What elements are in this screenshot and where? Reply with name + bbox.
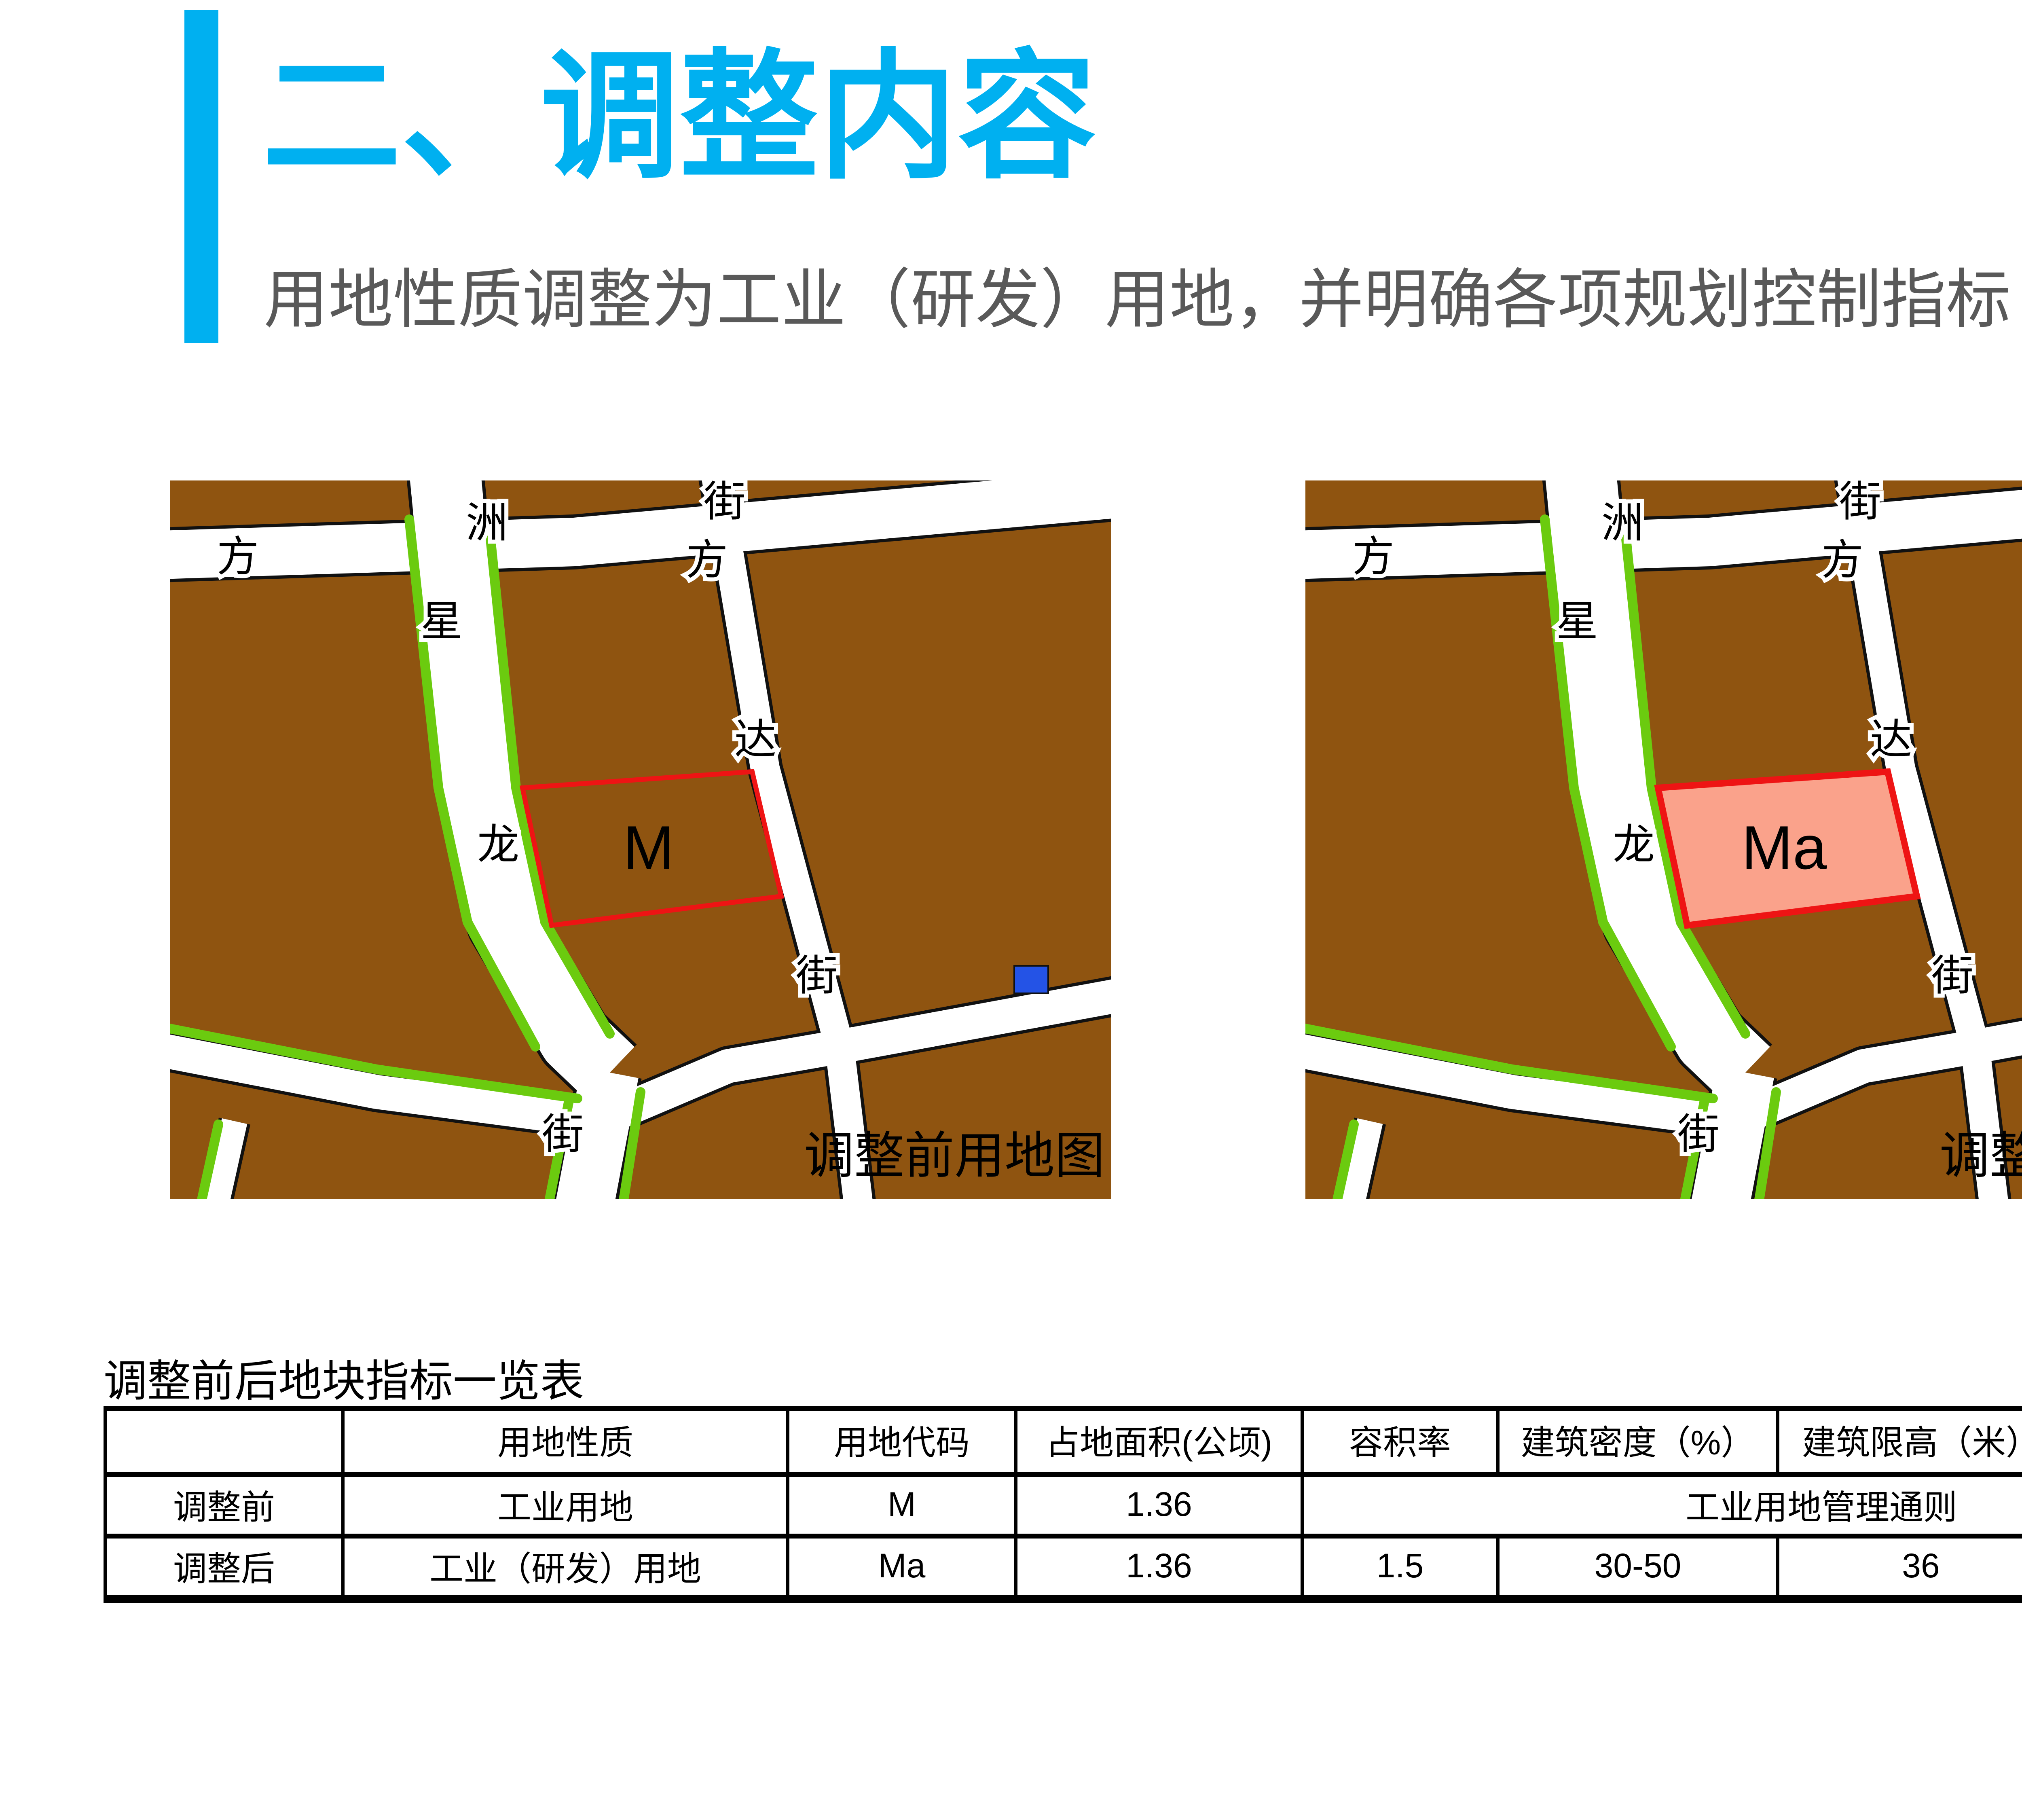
street-label-fang2: 方 xyxy=(686,537,728,584)
street-label-jie3: 街 xyxy=(1677,1111,1720,1158)
table-title: 调整前后地块指标一览表 xyxy=(104,1346,584,1409)
street-label-zhou: 洲 xyxy=(1601,499,1643,546)
th-blank xyxy=(105,1408,343,1475)
table-row-before: 调整前 工业用地 M 1.36 工业用地管理通则 xyxy=(105,1475,2022,1536)
th-landuse-nature: 用地性质 xyxy=(343,1408,788,1475)
cell-after-code: Ma xyxy=(788,1536,1016,1599)
map-caption-before: 调整前用地图 xyxy=(804,1128,1105,1184)
cell-before-code: M xyxy=(788,1475,1016,1536)
street-label-jie1: 街 xyxy=(704,480,746,525)
cell-before-area: 1.36 xyxy=(1016,1475,1302,1536)
cell-after-label: 调整后 xyxy=(105,1536,343,1599)
cell-after-area: 1.36 xyxy=(1016,1536,1302,1599)
cell-after-far: 1.5 xyxy=(1302,1536,1498,1599)
street-label-da: 达 xyxy=(734,716,776,763)
cell-before-nature: 工业用地 xyxy=(343,1475,788,1536)
title-accent-bar xyxy=(184,10,218,343)
cell-after-height: 36 xyxy=(1778,1536,2022,1599)
th-height-limit: 建筑限高（米） xyxy=(1778,1408,2022,1475)
street-label-long: 龙 xyxy=(1613,821,1655,868)
cell-before-merged: 工业用地管理通则 xyxy=(1302,1475,2022,1536)
street-label-jie3: 街 xyxy=(542,1111,584,1158)
page-title: 二、调整内容 xyxy=(262,42,1097,195)
th-landuse-code: 用地代码 xyxy=(788,1408,1016,1475)
landuse-map-before: 方 洲 街 方 星 达 龙 街 街 M 调整前用地图 xyxy=(170,480,1111,1199)
street-label-xing: 星 xyxy=(421,598,463,645)
street-label-fang2: 方 xyxy=(1821,537,1863,584)
plot-label-m: M xyxy=(623,813,675,882)
table-row-after: 调整后 工业（研发）用地 Ma 1.36 1.5 30-50 36 30 xyxy=(105,1536,2022,1599)
street-label-jie1: 街 xyxy=(1839,480,1881,525)
street-label-xing: 星 xyxy=(1556,598,1598,645)
cell-before-label: 调整前 xyxy=(105,1475,343,1536)
indicator-table: 用地性质 用地代码 占地面积(公顷) 容积率 建筑密度（%） 建筑限高（米） 绿… xyxy=(104,1406,2022,1603)
plot-label-ma: Ma xyxy=(1741,813,1827,882)
page-subtitle: 用地性质调整为工业（研发）用地，并明确各项规划控制指标 xyxy=(264,248,2011,341)
slide-canvas: 二、调整内容 用地性质调整为工业（研发）用地，并明确各项规划控制指标 方 洲 街… xyxy=(0,0,2022,1820)
street-label-jie2: 街 xyxy=(796,952,838,999)
table-header-row: 用地性质 用地代码 占地面积(公顷) 容积率 建筑密度（%） 建筑限高（米） 绿… xyxy=(105,1408,2022,1475)
street-label-fang1: 方 xyxy=(217,533,259,580)
th-far: 容积率 xyxy=(1302,1408,1498,1475)
street-label-da: 达 xyxy=(1870,716,1912,763)
street-label-long: 龙 xyxy=(477,821,519,868)
cell-after-nature: 工业（研发）用地 xyxy=(343,1536,788,1599)
street-label-jie2: 街 xyxy=(1931,952,1973,999)
street-label-zhou: 洲 xyxy=(466,499,508,546)
cell-after-density: 30-50 xyxy=(1498,1536,1778,1599)
map-caption-after: 调整后用地图 xyxy=(1940,1128,2022,1184)
th-density: 建筑密度（%） xyxy=(1498,1408,1778,1475)
landuse-map-after: 方 洲 街 方 星 达 龙 街 街 Ma 调整后用地图 xyxy=(1305,480,2022,1199)
th-area: 占地面积(公顷) xyxy=(1016,1408,1302,1475)
street-label-fang1: 方 xyxy=(1352,533,1394,580)
